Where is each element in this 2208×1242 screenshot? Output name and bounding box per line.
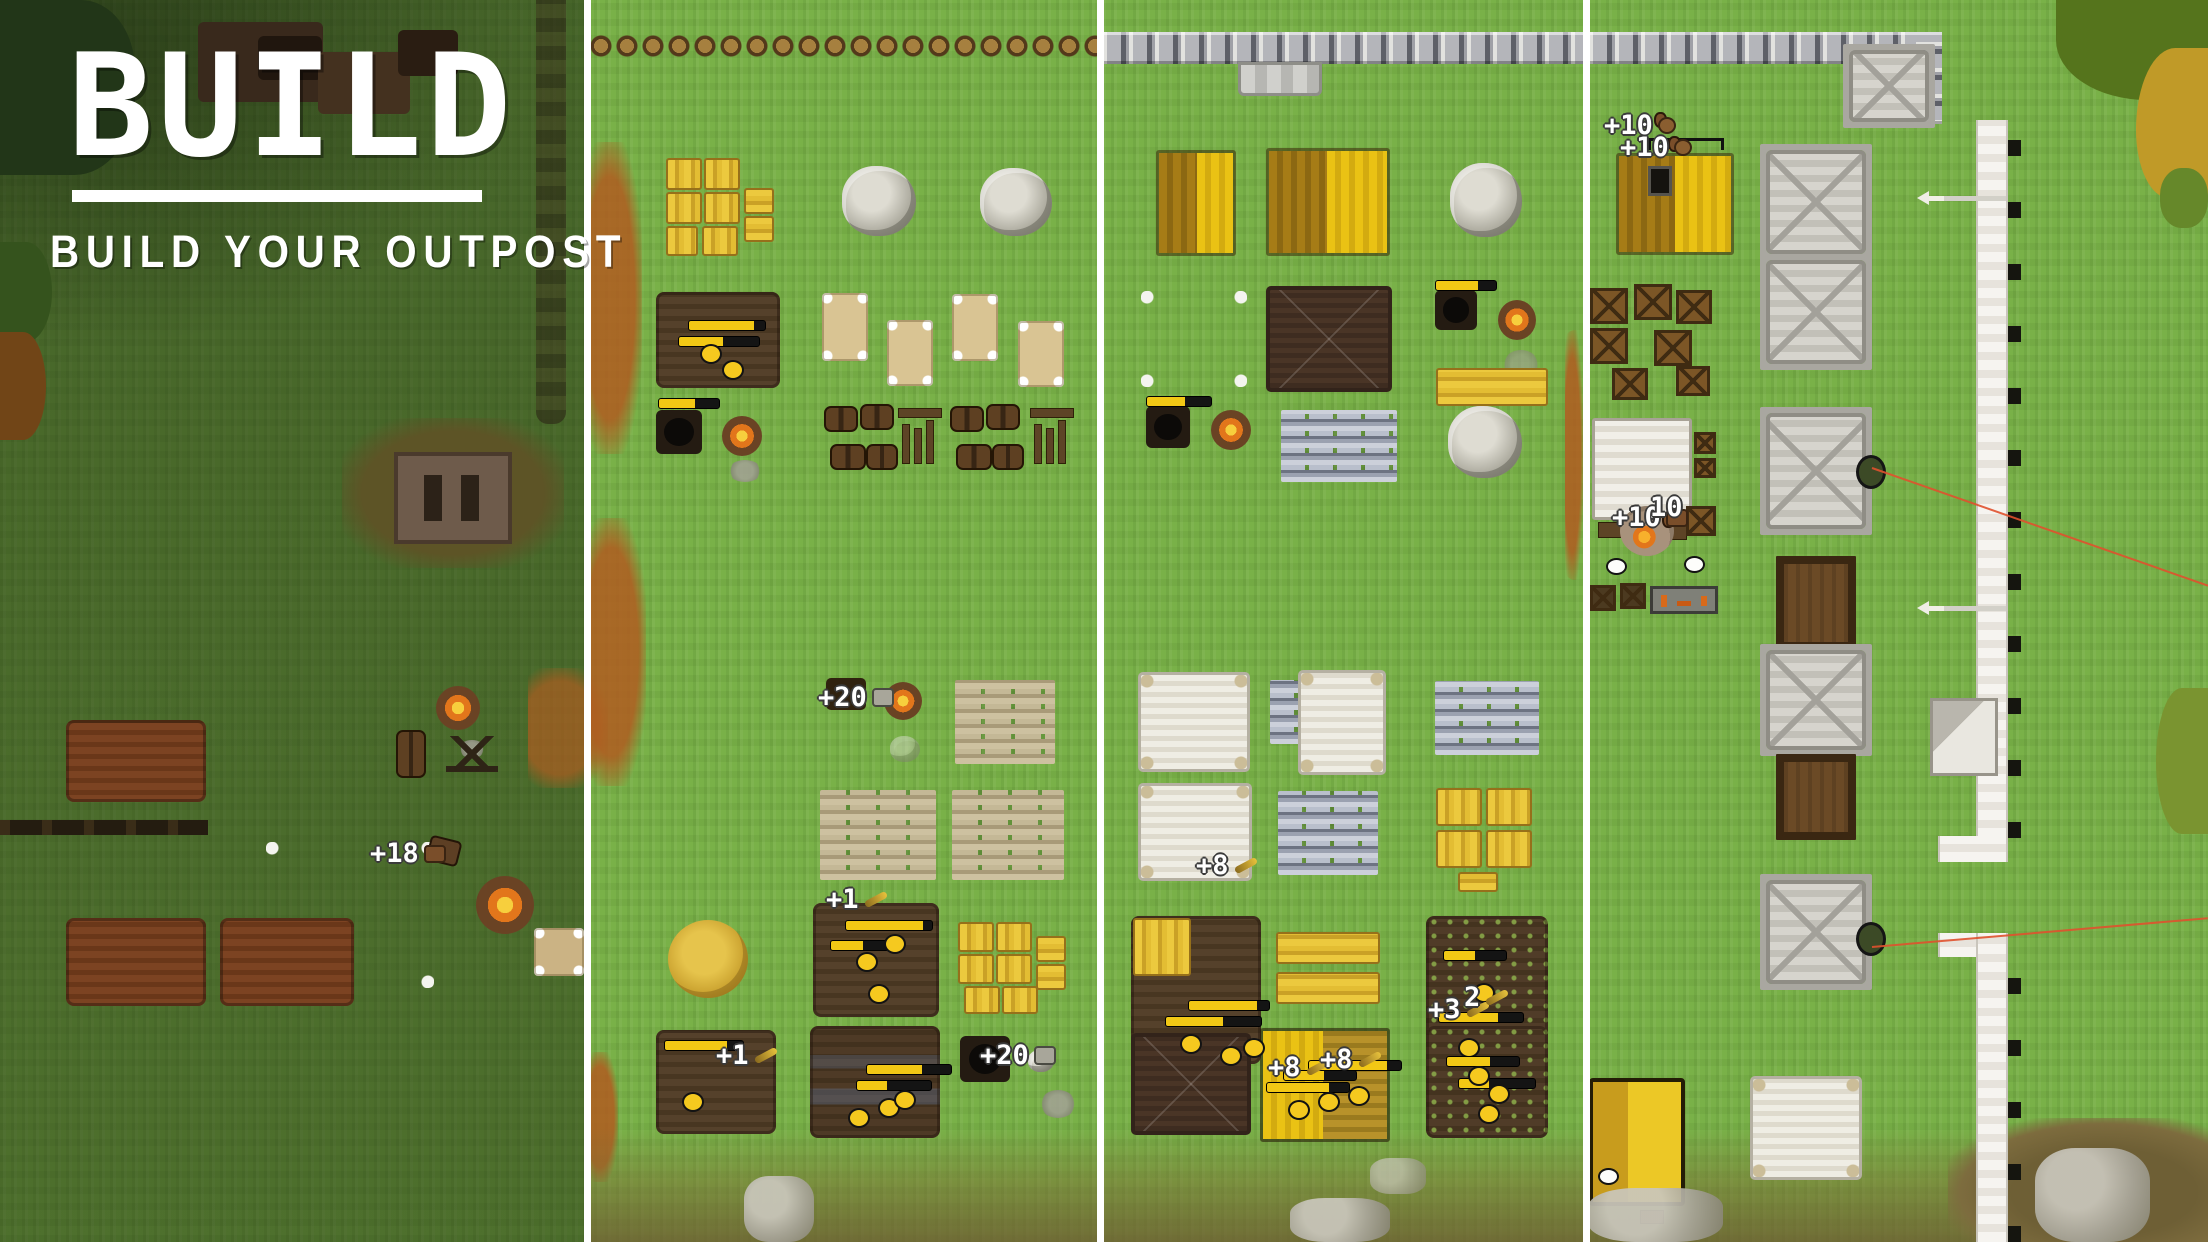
chicken[interactable] <box>868 984 890 1004</box>
ballista-turret[interactable] <box>1856 922 1886 956</box>
chicken[interactable] <box>682 1092 704 1112</box>
chicken[interactable] <box>1458 1038 1480 1058</box>
wall-bastion[interactable] <box>1238 62 1322 96</box>
arrow-projectile <box>1928 606 2006 611</box>
panel-divider <box>1097 0 1104 1242</box>
clay-patch <box>588 142 642 454</box>
tilled-plot[interactable] <box>66 918 206 1006</box>
cooking-pot[interactable] <box>1435 290 1477 330</box>
tree-canopy <box>2160 168 2208 228</box>
hay-bale[interactable] <box>744 188 774 214</box>
chicken[interactable] <box>1180 1034 1202 1054</box>
wooden-fence[interactable] <box>0 820 208 835</box>
stone-debris <box>890 736 920 762</box>
floating-label: +18 <box>370 840 446 867</box>
wooden-crate[interactable] <box>1694 458 1716 478</box>
hay-bale[interactable] <box>1436 788 1482 826</box>
campfire[interactable] <box>722 416 762 456</box>
tree-canopy <box>2156 688 2208 834</box>
metal-stockpile[interactable] <box>1281 410 1397 482</box>
green-tent[interactable] <box>1141 291 1247 387</box>
wall-gate-stub[interactable] <box>1938 836 2008 862</box>
wheat-unripe <box>1159 153 1197 253</box>
wooden-crate[interactable] <box>1676 290 1712 324</box>
chicken[interactable] <box>884 934 906 954</box>
log-stack <box>914 428 922 464</box>
wooden-crate[interactable] <box>1620 583 1646 609</box>
chicken[interactable] <box>1288 1100 1310 1120</box>
chicken-white[interactable] <box>1598 1168 1619 1185</box>
chicken[interactable] <box>700 344 722 364</box>
chicken[interactable] <box>856 952 878 972</box>
chicken[interactable] <box>894 1090 916 1110</box>
wooden-crate[interactable] <box>1612 368 1648 400</box>
wheat-ripe <box>1327 151 1387 253</box>
floating-label: +20 <box>818 684 894 711</box>
hay-bale[interactable] <box>704 158 740 190</box>
log-stack <box>902 424 910 464</box>
wooden-crate[interactable] <box>1634 284 1672 320</box>
wheat-field[interactable] <box>1616 153 1734 255</box>
wheat-ripe <box>1197 153 1233 253</box>
barrel[interactable] <box>950 406 984 432</box>
egg <box>1684 556 1705 573</box>
hay-bale[interactable] <box>666 192 702 224</box>
white-storage-tent[interactable] <box>1750 1076 1862 1180</box>
hay-bale[interactable] <box>1002 986 1038 1014</box>
canvas-bedroll[interactable] <box>822 293 868 361</box>
floating-label: +1 <box>716 1042 778 1069</box>
floating-label: +8 <box>1196 852 1258 879</box>
log-stack <box>1046 428 1054 464</box>
white-storage-tent[interactable] <box>1138 672 1250 772</box>
canvas-bedroll[interactable] <box>952 294 998 361</box>
hay-bale[interactable] <box>964 986 1000 1014</box>
hay-bale[interactable] <box>1486 830 1532 868</box>
dirt-path <box>536 0 566 424</box>
stone-pile[interactable] <box>980 168 1052 236</box>
campfire[interactable] <box>1211 410 1251 450</box>
meat-icon <box>424 845 446 863</box>
targeting-laser <box>1872 917 2208 948</box>
guard-house[interactable] <box>1930 698 1998 776</box>
wheat-icon <box>753 1047 777 1064</box>
granary[interactable] <box>1589 1078 1685 1206</box>
hay-bale[interactable] <box>1486 788 1532 826</box>
hay-bale[interactable] <box>744 216 774 242</box>
wheat-unripe <box>1269 151 1327 253</box>
tree <box>0 242 52 342</box>
stone-wall[interactable] <box>1103 32 1583 64</box>
campfire[interactable] <box>1498 300 1536 340</box>
title-underline <box>72 190 482 202</box>
egg <box>1606 558 1627 575</box>
hay-bale[interactable] <box>1436 830 1482 868</box>
floating-label: +20 <box>980 1042 1056 1069</box>
log-stack <box>1030 408 1074 418</box>
wheat-icon <box>1233 857 1257 874</box>
wooden-platform[interactable] <box>1780 758 1852 836</box>
stone-tower[interactable] <box>1766 650 1866 750</box>
metal-stockpile[interactable] <box>1278 791 1378 875</box>
page-subtitle: BUILD YOUR OUTPOST <box>50 226 627 278</box>
hay-bale[interactable] <box>1036 936 1066 962</box>
abandoned-cart[interactable] <box>394 452 512 544</box>
wooden-crate[interactable] <box>1686 506 1716 536</box>
rocky-ground <box>1370 1158 1426 1194</box>
barrel[interactable] <box>986 404 1020 430</box>
plank-stockpile[interactable] <box>820 790 936 880</box>
palisade-wall[interactable] <box>588 30 1097 64</box>
barrel[interactable] <box>396 730 426 778</box>
campfire[interactable] <box>436 686 480 730</box>
panel-divider <box>584 0 591 1242</box>
log-stack <box>1058 420 1066 464</box>
barrel[interactable] <box>866 444 898 470</box>
chicken[interactable] <box>1478 1104 1500 1124</box>
plank-stockpile[interactable] <box>952 790 1064 880</box>
hay-bale-row[interactable] <box>1436 368 1548 406</box>
chicken[interactable] <box>1220 1046 1242 1066</box>
chicken[interactable] <box>1348 1086 1370 1106</box>
autumn-tree <box>0 332 46 440</box>
chicken[interactable] <box>1488 1084 1510 1104</box>
floating-label: +10 <box>1620 134 1692 161</box>
chicken[interactable] <box>1243 1038 1265 1058</box>
floating-label: +8 <box>1320 1046 1382 1073</box>
clay-patch <box>1565 330 1583 580</box>
stone-tower[interactable] <box>1766 260 1866 364</box>
cooking-pot[interactable] <box>1146 406 1190 448</box>
rocky-ground <box>1290 1198 1390 1242</box>
rocky-ground <box>1588 1188 1723 1242</box>
stone-tower[interactable] <box>1766 880 1866 984</box>
hay-bale[interactable] <box>666 226 698 256</box>
hay-bale[interactable] <box>1036 964 1066 990</box>
stone-icon <box>872 688 894 707</box>
barrel[interactable] <box>830 444 866 470</box>
gate-tower[interactable] <box>1849 50 1929 122</box>
wooden-crate[interactable] <box>1694 432 1716 454</box>
log-stack <box>926 420 934 464</box>
hay-row <box>1276 932 1380 964</box>
hay-row <box>1276 972 1380 1004</box>
floating-label: 2 <box>1464 984 1509 1011</box>
food-icon <box>1674 139 1692 156</box>
sawhorse[interactable] <box>446 736 498 772</box>
hay-bale[interactable] <box>958 922 994 952</box>
wooden-crate[interactable] <box>1676 366 1710 396</box>
hay-corner <box>1133 918 1191 976</box>
chicken[interactable] <box>1318 1092 1340 1112</box>
hay-bale[interactable] <box>996 954 1032 984</box>
panel-divider <box>1583 0 1590 1242</box>
hay-bale[interactable] <box>704 192 740 224</box>
barrel[interactable] <box>992 444 1024 470</box>
wooden-crate[interactable] <box>1590 585 1616 611</box>
wheat-field[interactable] <box>1156 150 1236 256</box>
barrel[interactable] <box>956 444 992 470</box>
wheat-icon <box>1485 989 1509 1006</box>
game-screenshot: +18 +20 +1 <box>0 0 2208 1242</box>
weapon-rack[interactable] <box>1650 586 1718 614</box>
wheat-ripe <box>1675 156 1731 252</box>
wooden-platform[interactable] <box>1780 560 1852 646</box>
stone-icon <box>1034 1046 1056 1065</box>
chicken[interactable] <box>848 1108 870 1128</box>
barrel[interactable] <box>824 406 858 432</box>
stone-debris <box>1040 1090 1076 1118</box>
barrel[interactable] <box>860 404 894 430</box>
chicken[interactable] <box>722 360 744 380</box>
wheat-field[interactable] <box>1266 148 1390 256</box>
arrow-projectile <box>1928 196 2006 201</box>
canvas-bedroll[interactable] <box>534 928 584 976</box>
page-title: BUILD <box>68 36 515 178</box>
hay-bale[interactable] <box>666 158 702 190</box>
log-stack <box>898 408 942 418</box>
floating-label: 10 <box>1650 494 1683 521</box>
floating-label: +1 <box>826 886 888 913</box>
clay-patch <box>588 518 646 786</box>
stone-pile[interactable] <box>1448 406 1522 478</box>
wheat-icon <box>1357 1051 1381 1068</box>
hay-bale[interactable] <box>702 226 738 256</box>
targeting-laser <box>1872 467 2208 587</box>
stone-tower[interactable] <box>1766 413 1866 529</box>
metal-stockpile[interactable] <box>1435 681 1539 755</box>
chicken[interactable] <box>1468 1066 1490 1086</box>
tilled-plot[interactable] <box>220 918 354 1006</box>
tilled-plot[interactable] <box>66 720 206 802</box>
canvas-bedroll[interactable] <box>1018 321 1064 387</box>
mill-chimney <box>1648 166 1672 196</box>
rocky-ground <box>744 1176 814 1242</box>
hay-mound[interactable] <box>668 920 748 998</box>
wooden-crate[interactable] <box>1590 288 1628 324</box>
plank-stockpile[interactable] <box>955 680 1055 764</box>
canvas-bedroll[interactable] <box>887 320 933 386</box>
hay-bale[interactable] <box>996 922 1032 952</box>
stone-pile[interactable] <box>1450 163 1522 237</box>
rocky-ground <box>2035 1148 2150 1242</box>
log-stack <box>1034 424 1042 464</box>
wooden-crate[interactable] <box>1590 328 1628 364</box>
hay-bale[interactable] <box>958 954 994 984</box>
cooking-pot[interactable] <box>656 410 702 454</box>
hay-bale[interactable] <box>1458 872 1498 892</box>
stone-debris <box>728 460 762 482</box>
wooden-wall[interactable] <box>1976 933 2008 1242</box>
wooden-hut[interactable] <box>1266 286 1392 392</box>
stone-pile[interactable] <box>842 166 916 236</box>
stone-tower[interactable] <box>1766 150 1866 254</box>
campfire[interactable] <box>476 876 534 934</box>
wheat-icon <box>863 891 887 908</box>
wooden-crate[interactable] <box>1654 330 1692 366</box>
white-storage-tent[interactable] <box>1298 670 1386 775</box>
